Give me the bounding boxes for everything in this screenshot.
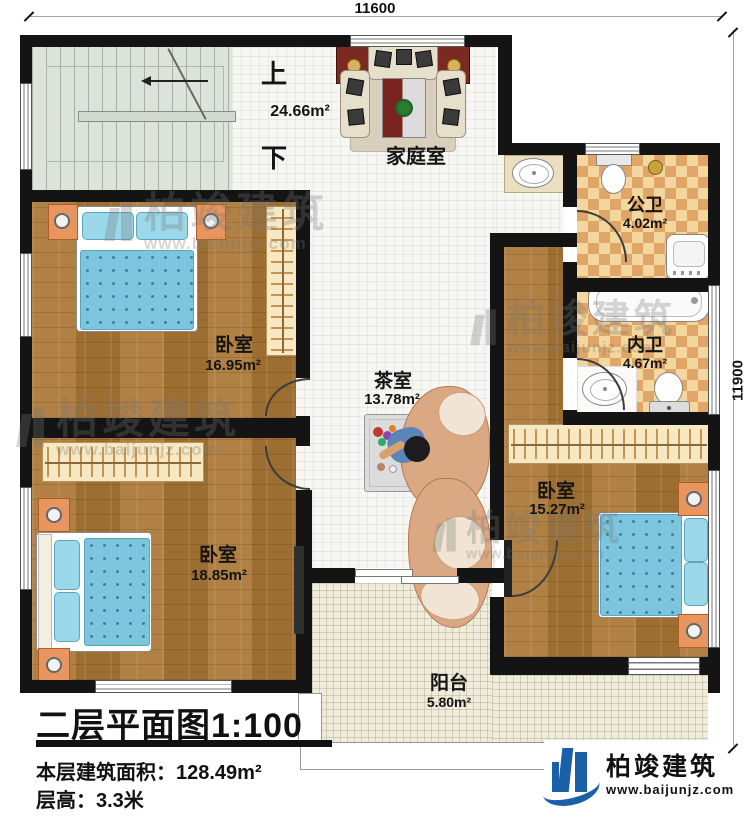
nightstand: [678, 482, 710, 516]
tv-panel: [294, 546, 304, 634]
floor-plan: 柏竣建筑 www.baijunjz.com 柏竣建筑 www.baijunjz.…: [0, 0, 750, 817]
wall: [20, 35, 32, 83]
wall: [563, 412, 720, 425]
pillow: [82, 212, 134, 240]
toilet-bowl: [601, 164, 626, 194]
wall: [296, 190, 310, 378]
window: [20, 253, 32, 337]
floor-height-label: 层高：: [36, 790, 96, 812]
nightstand: [38, 498, 70, 532]
wardrobe-bedroom-top-left: [266, 206, 298, 356]
wall: [232, 680, 310, 693]
sliding-door-balcony: [401, 576, 459, 584]
stair-down-label: 下: [258, 144, 290, 173]
pillow: [684, 518, 708, 562]
washing-machine: [666, 234, 710, 280]
wardrobe-bedroom-right: [508, 424, 710, 464]
wall: [700, 657, 720, 675]
area-balcony: 5.80m²: [418, 695, 480, 710]
person-head: [404, 436, 430, 462]
dimension-top-value: 11600: [335, 0, 415, 17]
balcony-floor-east: [492, 675, 708, 742]
sofa-right: [436, 70, 466, 138]
brand-name: 柏竣建筑: [606, 753, 734, 782]
wall: [563, 278, 720, 292]
flowers-icon: [373, 427, 383, 437]
floor-height-value: 3.3米: [96, 790, 144, 812]
label-bedroom-top-left: 卧室: [206, 336, 262, 357]
floor-area-value: 128.49m²: [176, 762, 262, 784]
vanity-sink: [512, 158, 554, 188]
mattress-top-left: [80, 250, 194, 330]
label-tea-room: 茶室: [364, 372, 422, 393]
brand-logo: 柏竣建筑 www.baijunjz.com: [544, 740, 722, 810]
area-bedroom-right: 15.27m²: [522, 502, 592, 519]
window: [708, 285, 720, 415]
wall: [563, 262, 577, 358]
pillow: [684, 562, 708, 606]
area-bedroom-bottom-left: 18.85m²: [184, 568, 254, 585]
window: [585, 143, 640, 155]
pillow: [54, 540, 80, 590]
stair-arrow-icon: [141, 76, 151, 86]
window: [708, 470, 720, 648]
nightstand: [38, 648, 70, 682]
wall: [708, 143, 720, 285]
door-leaf-bedroom-right: [504, 540, 512, 597]
window: [20, 487, 32, 590]
stair-direction-line: [150, 80, 208, 82]
pillow: [54, 592, 80, 642]
bedroom-right-floor-strip: [504, 247, 563, 420]
sofa-back: [368, 42, 438, 80]
label-bedroom-right: 卧室: [528, 482, 584, 503]
area-tea-room: 13.78m²: [358, 392, 426, 409]
area-public-bathroom: 4.02m²: [612, 216, 678, 231]
brand-building-icon: [544, 746, 600, 804]
window: [20, 83, 32, 170]
mattress-right: [600, 514, 682, 616]
wall: [498, 35, 512, 155]
stair-up-label: 上: [258, 60, 290, 89]
label-bedroom-bottom-left: 卧室: [190, 546, 246, 567]
wall: [20, 590, 32, 693]
window: [350, 35, 465, 47]
headboard: [38, 534, 52, 650]
wall: [20, 337, 32, 487]
nightstand: [196, 204, 226, 240]
area-inner-bathroom: 4.67m²: [612, 356, 678, 371]
wall: [490, 247, 504, 540]
window: [95, 680, 232, 693]
title-underline: [36, 740, 332, 747]
wall: [310, 568, 355, 583]
nightstand: [678, 614, 710, 648]
ceiling-light-icon: [648, 160, 663, 175]
wardrobe-bedroom-bottom-left: [42, 442, 204, 482]
wall: [490, 233, 577, 247]
wall: [457, 568, 504, 583]
stair-rail-bar: [78, 111, 236, 122]
floor-height-line: 层高：3.3米: [36, 784, 144, 813]
floor-area-line: 本层建筑面积：128.49m²: [36, 756, 262, 785]
nightstand: [48, 204, 78, 240]
wall: [490, 657, 628, 675]
wall: [20, 35, 350, 47]
label-public-bathroom: 公卫: [618, 196, 672, 216]
wall: [20, 680, 95, 693]
wall: [563, 143, 577, 207]
label-inner-bathroom: 内卫: [618, 336, 672, 356]
floor-area-label: 本层建筑面积：: [36, 762, 176, 784]
wall: [20, 190, 310, 202]
sofa-left: [340, 70, 370, 138]
dimension-right-value: 11900: [730, 341, 747, 421]
mattress-bottom-left: [84, 538, 150, 646]
wall: [490, 597, 504, 657]
window: [628, 657, 700, 675]
area-bedroom-top-left: 16.95m²: [198, 358, 268, 375]
wall: [20, 418, 310, 438]
label-family-room: 家庭室: [370, 146, 462, 168]
coffee-table: [382, 78, 426, 138]
label-balcony: 阳台: [420, 674, 478, 695]
wall: [20, 170, 32, 253]
wall: [296, 416, 310, 446]
area-family-room: 24.66m²: [258, 103, 342, 121]
plant-icon: [395, 99, 413, 117]
brand-url: www.baijunjz.com: [606, 782, 734, 797]
pillow: [136, 212, 188, 240]
